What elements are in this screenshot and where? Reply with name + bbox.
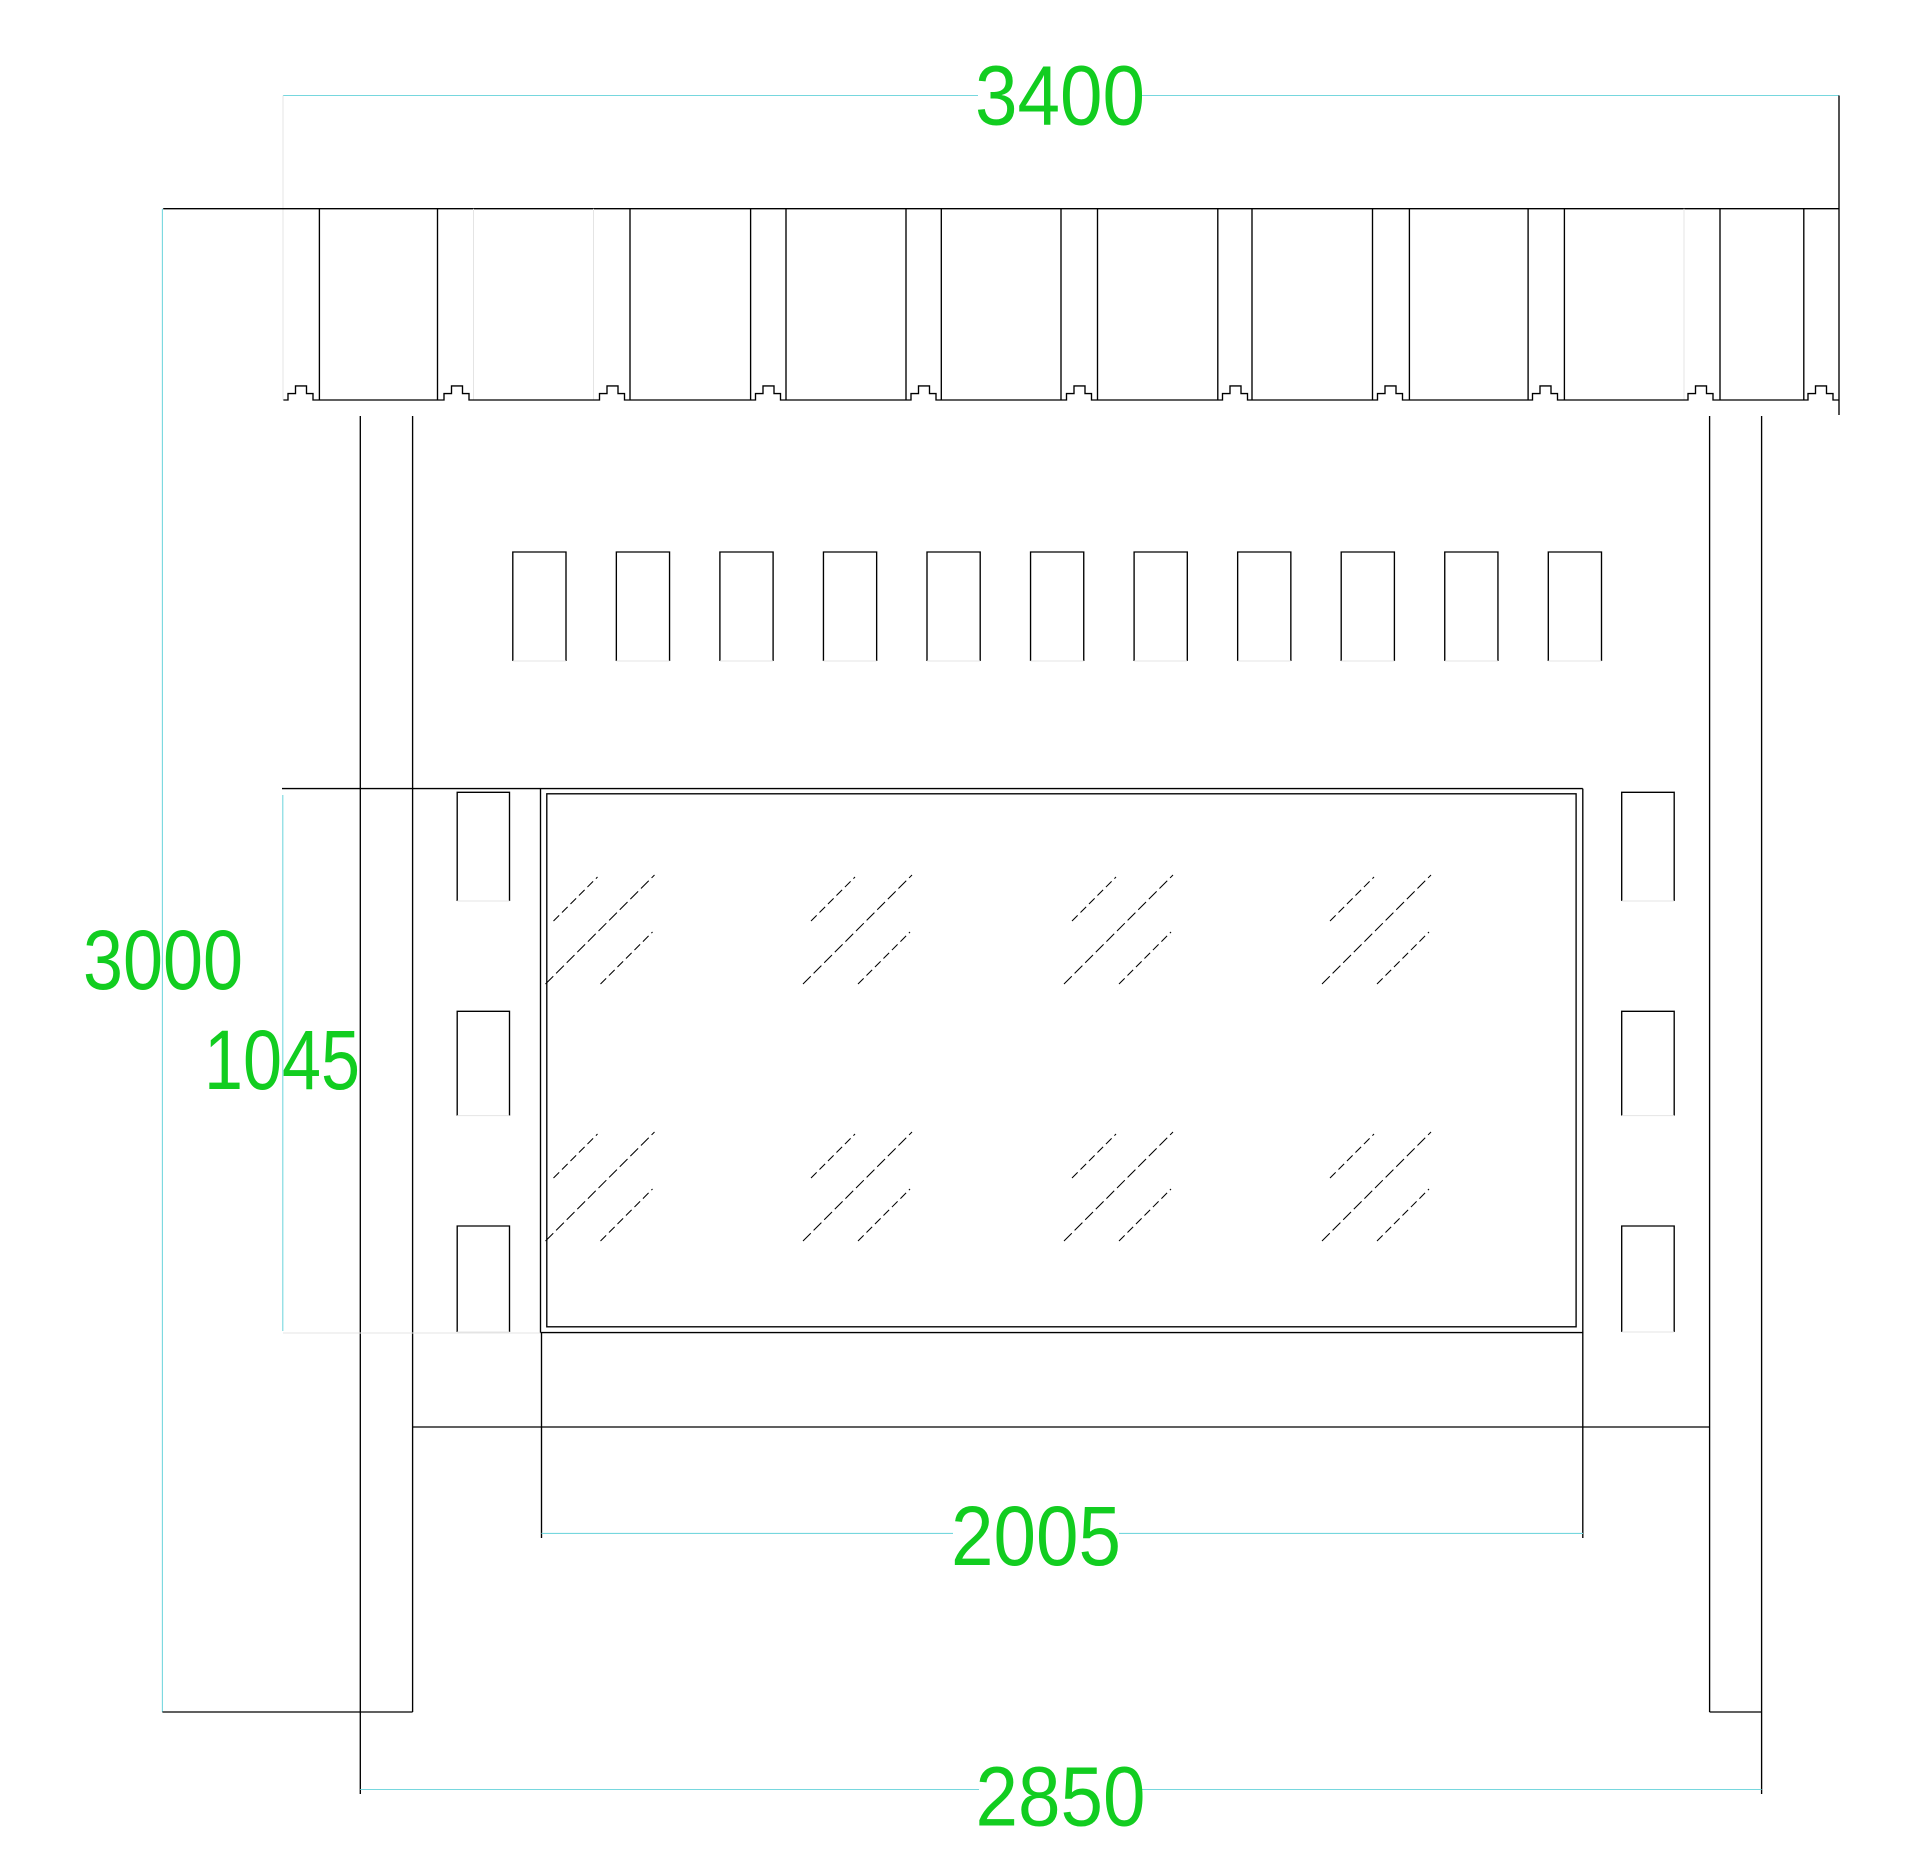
svg-text:3000: 3000 xyxy=(83,913,243,1007)
svg-text:2850: 2850 xyxy=(976,1750,1146,1844)
svg-text:2005: 2005 xyxy=(951,1489,1121,1583)
svg-text:3400: 3400 xyxy=(975,49,1145,143)
svg-text:1045: 1045 xyxy=(204,1013,360,1107)
